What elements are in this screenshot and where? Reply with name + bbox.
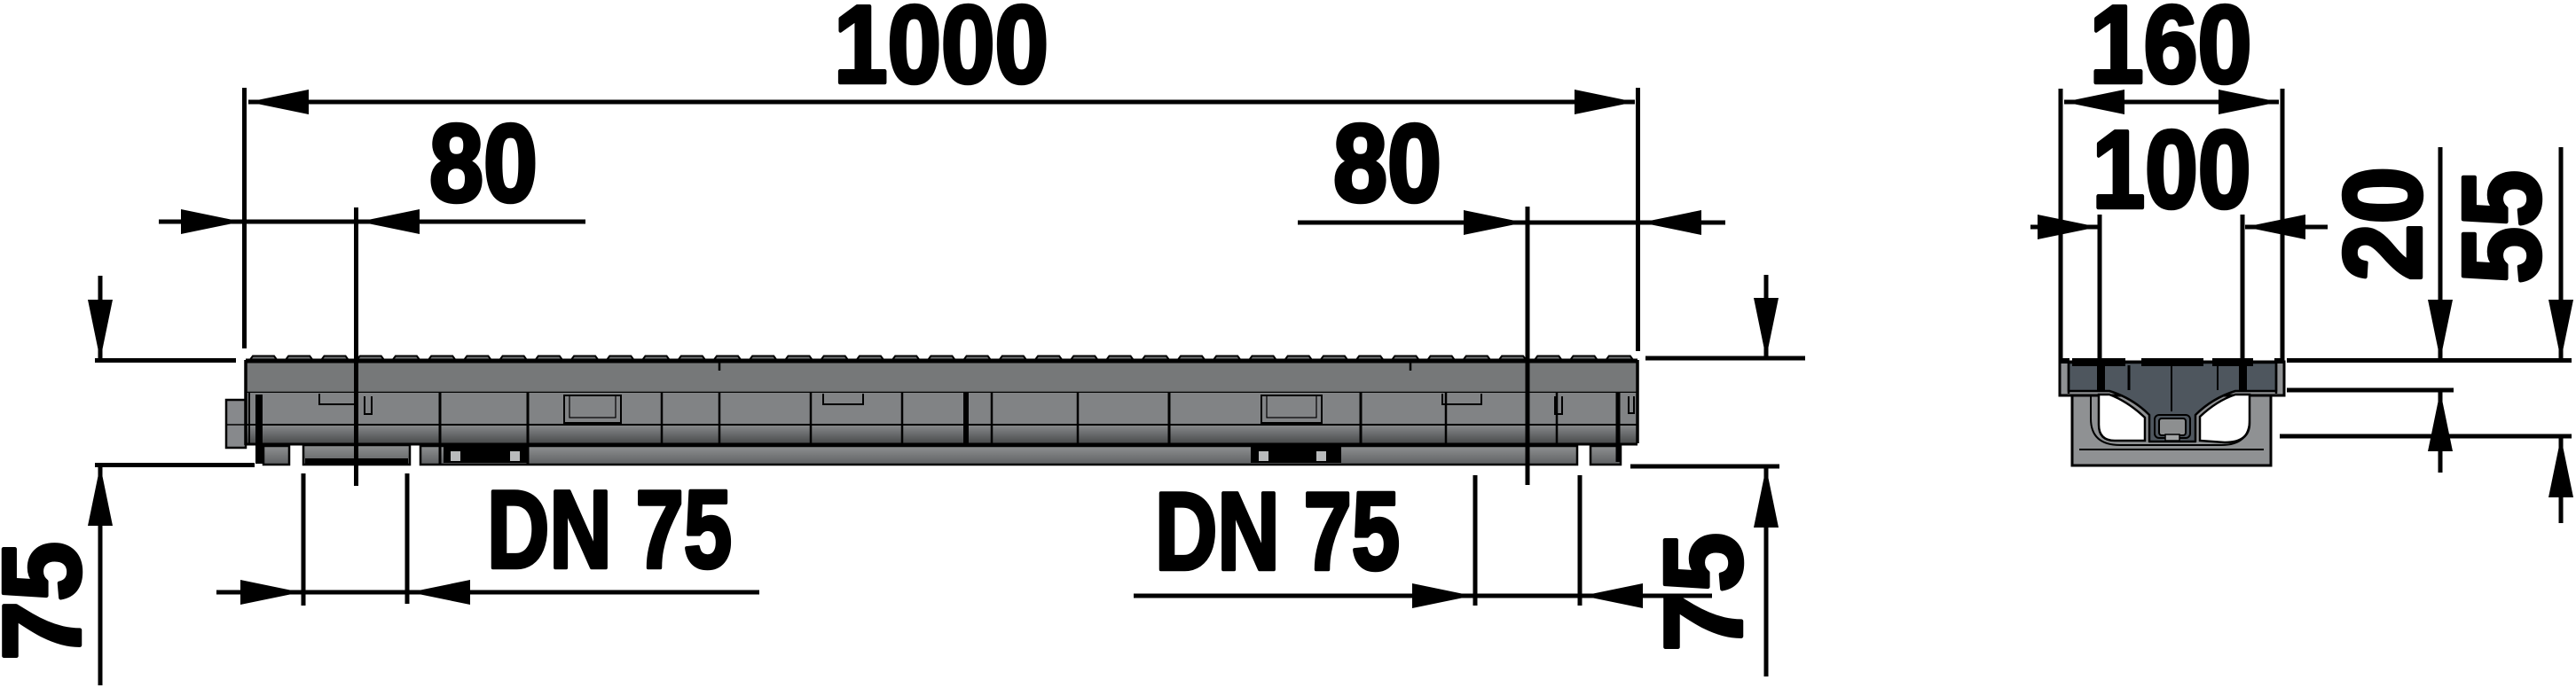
svg-text:100: 100	[2093, 109, 2251, 231]
svg-text:1000: 1000	[834, 0, 1048, 106]
svg-text:55: 55	[2441, 170, 2564, 284]
svg-text:160: 160	[2090, 0, 2252, 106]
svg-text:75: 75	[1643, 533, 1765, 652]
svg-text:DN 75: DN 75	[487, 469, 732, 591]
svg-text:DN 75: DN 75	[1155, 471, 1400, 593]
svg-text:80: 80	[1333, 103, 1441, 225]
svg-text:80: 80	[429, 103, 538, 225]
svg-text:20: 20	[2322, 167, 2445, 281]
svg-text:75: 75	[0, 542, 104, 661]
